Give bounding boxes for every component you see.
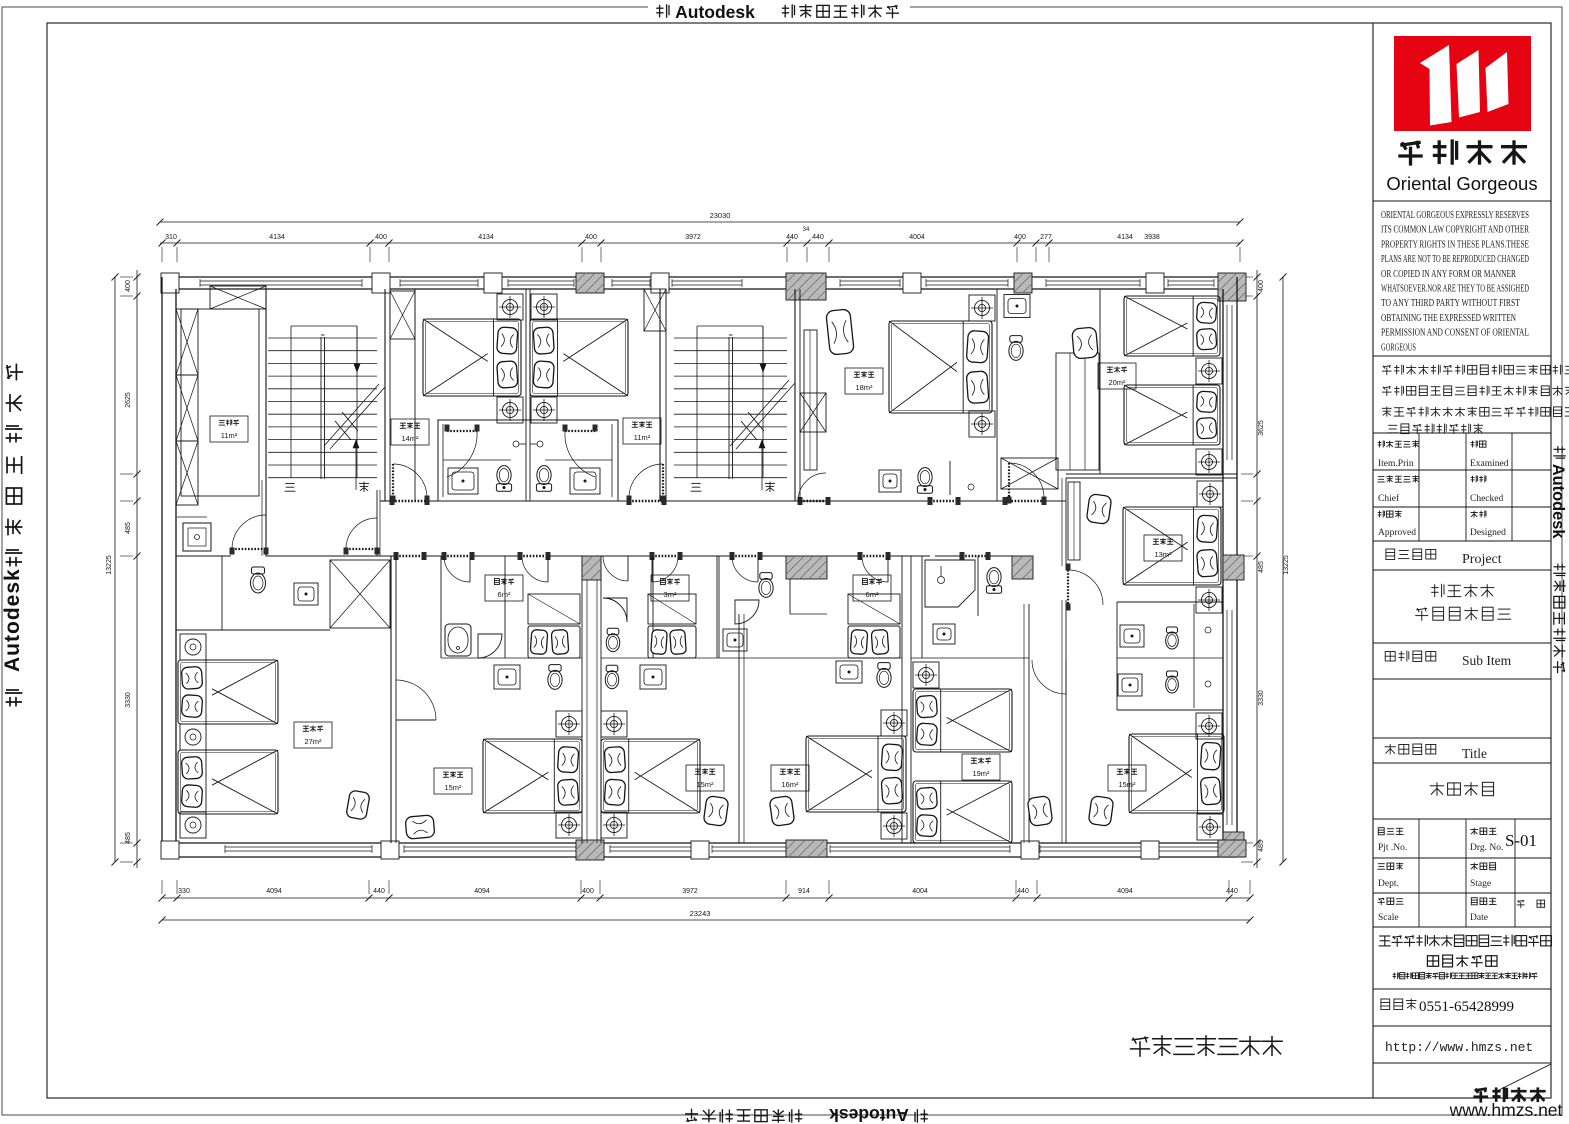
svg-text:485: 485 — [125, 832, 132, 844]
svg-text:4004: 4004 — [909, 234, 925, 241]
svg-text:440: 440 — [812, 234, 824, 241]
svg-text:27m²: 27m² — [304, 737, 322, 746]
svg-text:Dept.: Dept. — [1378, 879, 1399, 889]
svg-text:13225: 13225 — [106, 555, 113, 575]
svg-text:Chief: Chief — [1378, 493, 1400, 504]
svg-text:13m²: 13m² — [1154, 550, 1172, 559]
svg-text:16m²: 16m² — [781, 780, 799, 789]
svg-text:Autodesk: Autodesk — [829, 1105, 909, 1124]
svg-text:www.hmzs.net: www.hmzs.net — [1449, 1100, 1563, 1120]
svg-text:13225: 13225 — [1283, 555, 1290, 575]
svg-text:Designed: Designed — [1470, 528, 1506, 538]
svg-text:485: 485 — [1258, 840, 1265, 852]
svg-text:15m²: 15m² — [696, 780, 714, 789]
svg-text:S-01: S-01 — [1505, 831, 1537, 850]
svg-text:485: 485 — [125, 522, 132, 534]
svg-text:400: 400 — [125, 280, 132, 292]
svg-text:15m²: 15m² — [1118, 780, 1136, 789]
svg-text:914: 914 — [798, 888, 810, 895]
svg-text:15m²: 15m² — [444, 783, 462, 792]
svg-text:4134: 4134 — [269, 234, 285, 241]
svg-text:Project: Project — [1462, 552, 1502, 567]
svg-text:6m²: 6m² — [498, 590, 511, 599]
svg-text:4134: 4134 — [1117, 234, 1133, 241]
svg-text:277: 277 — [1040, 234, 1052, 241]
svg-text:ORIENTAL GORGEOUS EXPRESSLY RE: ORIENTAL GORGEOUS EXPRESSLY RESERVES — [1381, 209, 1529, 221]
svg-text:11m²: 11m² — [221, 431, 238, 440]
svg-text:PLANS ARE NOT TO BE REPRODUCED: PLANS ARE NOT TO BE REPRODUCED CHANGED — [1381, 253, 1529, 265]
svg-text:440: 440 — [786, 234, 798, 241]
svg-text:Drg. No.: Drg. No. — [1470, 843, 1503, 853]
svg-text:11m²: 11m² — [634, 433, 651, 442]
svg-text:3330: 3330 — [1258, 690, 1265, 706]
svg-text:23243: 23243 — [690, 909, 711, 918]
svg-text:GORGEOUS: GORGEOUS — [1381, 341, 1416, 353]
svg-text:3m²: 3m² — [664, 590, 677, 599]
svg-text:ITS COMMON LAW COPYRIGHT AND O: ITS COMMON LAW COPYRIGHT AND OTHER — [1381, 224, 1529, 236]
svg-text:400: 400 — [582, 888, 594, 895]
svg-text:4094: 4094 — [1117, 888, 1133, 895]
svg-text:400: 400 — [1014, 234, 1026, 241]
svg-text:Stage: Stage — [1470, 879, 1491, 889]
svg-text:OBTAINING THE EXPRESSED WRITTE: OBTAINING THE EXPRESSED WRITTEN — [1381, 312, 1516, 324]
svg-text:4094: 4094 — [474, 888, 490, 895]
svg-text:TO ANY THIRD PARTY WITHOUT FIR: TO ANY THIRD PARTY WITHOUT FIRST — [1381, 297, 1520, 309]
svg-text:Approved: Approved — [1378, 528, 1416, 538]
svg-text:3330: 3330 — [125, 692, 132, 708]
svg-text:18m²: 18m² — [855, 383, 873, 392]
svg-text:4004: 4004 — [912, 888, 928, 895]
svg-text:PERMISSION AND CONSENT OF ORIE: PERMISSION AND CONSENT OF ORIENTAL — [1381, 327, 1529, 339]
svg-text:20m²: 20m² — [1108, 378, 1126, 387]
svg-text:Examined: Examined — [1470, 459, 1509, 469]
svg-text:2625: 2625 — [125, 392, 132, 408]
svg-text:19m²: 19m² — [972, 769, 990, 778]
svg-text:400: 400 — [1258, 280, 1265, 292]
svg-text:Item.Prin: Item.Prin — [1378, 459, 1414, 469]
svg-text:23030: 23030 — [710, 211, 731, 220]
svg-text:440: 440 — [373, 888, 385, 895]
svg-text:3972: 3972 — [682, 888, 698, 895]
svg-text:Title: Title — [1462, 746, 1487, 761]
svg-text:PROPERTY RIGHTS IN THESE PLANS: PROPERTY RIGHTS IN THESE PLANS.THESE — [1381, 238, 1529, 250]
svg-text:485: 485 — [1258, 561, 1265, 573]
svg-text:400: 400 — [585, 234, 597, 241]
svg-text:Scale: Scale — [1378, 913, 1399, 923]
svg-text:440: 440 — [1017, 888, 1029, 895]
svg-text:0551-65428999: 0551-65428999 — [1419, 999, 1514, 1015]
svg-text:4094: 4094 — [266, 888, 282, 895]
svg-text:OR COPIED IN ANY FORM OR MANNE: OR COPIED IN ANY FORM OR MANNER — [1381, 268, 1516, 280]
svg-text:Autodesk: Autodesk — [1, 568, 24, 672]
svg-text:Autodesk: Autodesk — [1549, 464, 1567, 539]
svg-text:440: 440 — [1226, 888, 1238, 895]
svg-text:6m²: 6m² — [866, 590, 879, 599]
svg-text:http://www.hmzs.net: http://www.hmzs.net — [1385, 1040, 1533, 1055]
svg-text:14m²: 14m² — [401, 434, 419, 443]
svg-text:Autodesk: Autodesk — [675, 2, 755, 22]
svg-text:Pjt .No.: Pjt .No. — [1378, 843, 1407, 853]
svg-text:310: 310 — [165, 234, 177, 241]
svg-text:3625: 3625 — [1258, 420, 1265, 436]
svg-text:Checked: Checked — [1470, 494, 1503, 504]
svg-text:WHATSOEVER.NOR ARE THEY TO BE: WHATSOEVER.NOR ARE THEY TO BE ASSIGHED — [1381, 283, 1529, 295]
svg-text:Sub Item: Sub Item — [1462, 653, 1512, 668]
svg-text:400: 400 — [375, 234, 387, 241]
svg-text:3972: 3972 — [685, 234, 701, 241]
svg-text:Date: Date — [1470, 913, 1488, 923]
svg-text:3938: 3938 — [1144, 234, 1160, 241]
svg-text:Oriental Gorgeous: Oriental Gorgeous — [1386, 173, 1537, 194]
svg-text:330: 330 — [178, 888, 190, 895]
svg-text:4134: 4134 — [478, 234, 494, 241]
svg-text:34: 34 — [803, 227, 810, 233]
